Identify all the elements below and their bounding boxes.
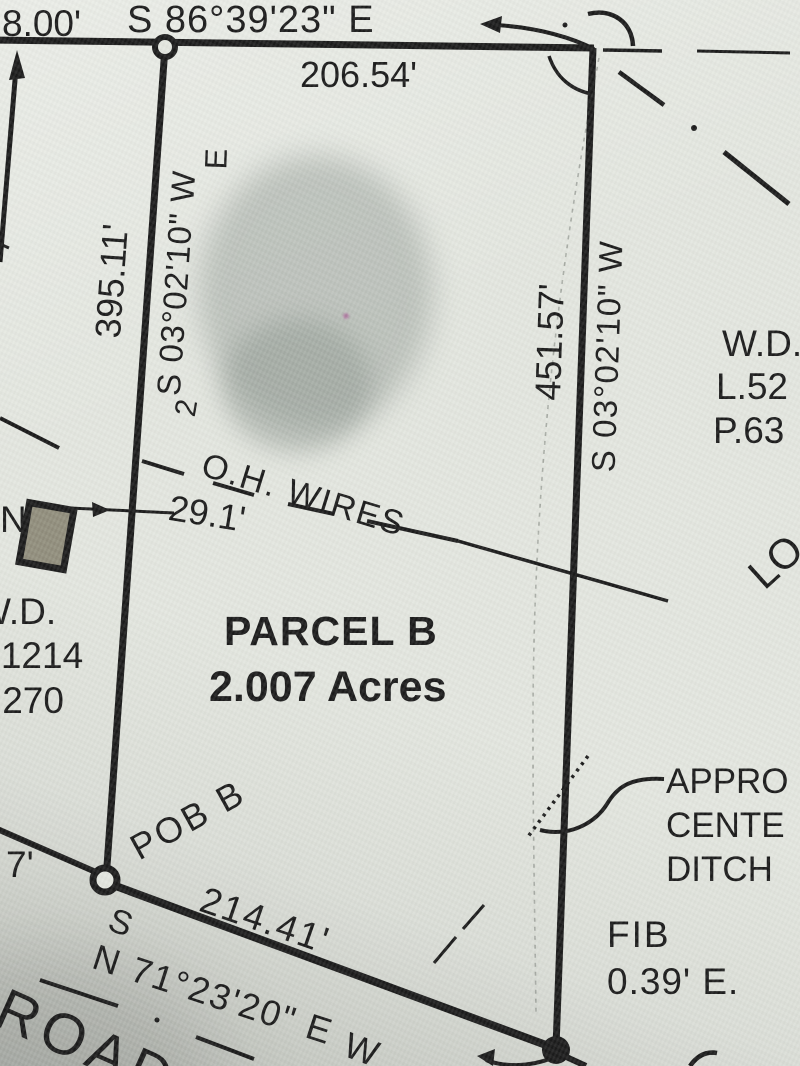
ditch-note-line3: DITCH — [666, 848, 789, 892]
label-west-distance: 395.11' — [89, 223, 135, 340]
ditch-note-line1: APPRO — [666, 760, 789, 804]
deed-right-line1: W.D. — [713, 322, 800, 365]
boundary-line-east — [556, 48, 593, 1047]
label-north-distance: 206.54' — [300, 56, 417, 94]
right-arrowhead — [92, 502, 110, 517]
hatch-diagonal-2 — [724, 152, 789, 204]
label-parcel-name: PARCEL B — [224, 610, 438, 653]
survey-plat-photo: 8.00' S 86°39'23" E 206.54' 395.11' S 03… — [0, 0, 800, 1066]
boundary-line-north — [0, 40, 594, 48]
deed-left-line2: L.1214 — [0, 634, 83, 678]
corner-angle-arc — [549, 56, 592, 94]
label-left-edge-n: N — [0, 500, 27, 539]
label-top-left-distance: 8.00' — [2, 4, 81, 43]
hatch-diagonal-1 — [619, 72, 664, 105]
found-monument-square — [19, 503, 74, 570]
line-stub-below-corner — [562, 1055, 586, 1066]
label-east-distance: 451.57' — [529, 283, 571, 401]
deed-right-line3: P.63 — [713, 409, 800, 452]
corner-arrow-road-curve — [486, 1058, 552, 1065]
ink-dot-3 — [155, 1018, 160, 1023]
label-fib-offset: 0.39' E. — [607, 962, 739, 1001]
deed-left-line1: W.D. — [0, 590, 83, 634]
ditch-dashes-at-road — [434, 905, 484, 963]
ditch-note: APPRO CENTE DITCH — [666, 760, 789, 891]
deed-reference-left: W.D. L.1214 P.270 — [0, 590, 83, 723]
deed-left-line3: P.270 — [0, 679, 83, 723]
label-west-extra-e: E — [200, 148, 234, 170]
label-north-bearing: S 86°39'23" E — [127, 0, 375, 40]
wires-offset-dimension-line — [70, 508, 174, 513]
bottom-right-curl — [690, 1053, 717, 1066]
deed-right-line2: L.52 — [713, 365, 800, 408]
ink-dot-2 — [691, 125, 697, 131]
left-arrowhead — [480, 16, 502, 33]
label-parcel-area: 2.007 Acres — [209, 665, 447, 711]
label-fib: FIB — [607, 915, 671, 954]
left-arrowhead-road — [477, 1049, 495, 1066]
up-arrowhead — [9, 50, 25, 80]
north-line-dash-2 — [697, 51, 790, 53]
north-line-dash-1 — [603, 50, 662, 51]
deed-reference-right: W.D. L.52 P.63 — [713, 322, 800, 452]
ditch-note-leader — [540, 779, 664, 832]
label-bottom-left-distance: 7' — [6, 845, 34, 884]
corner-swoosh-arc — [588, 13, 633, 46]
adjoiner-line-west — [0, 68, 16, 262]
ditch-note-line2: CENTE — [666, 804, 789, 848]
ink-dot-1 — [563, 23, 568, 28]
